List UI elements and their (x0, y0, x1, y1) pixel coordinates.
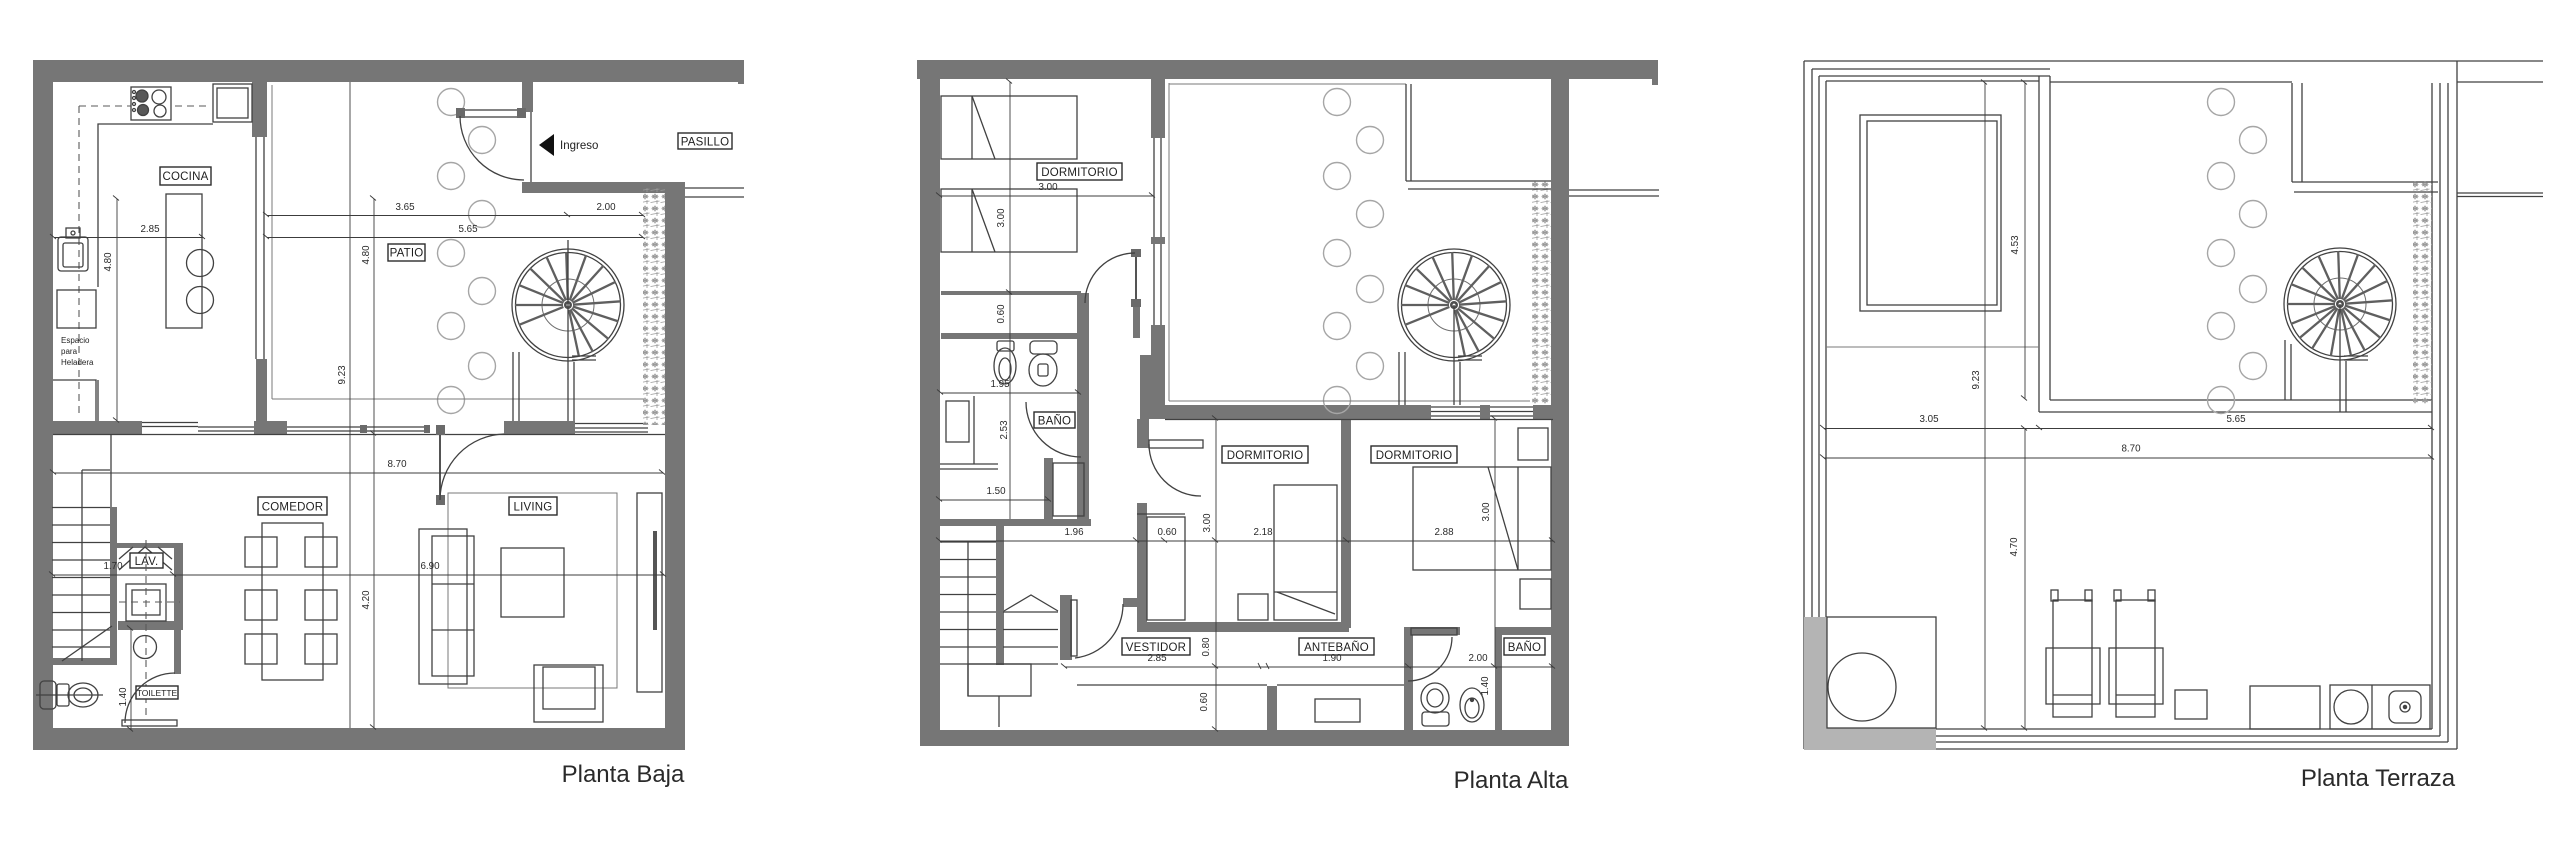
svg-text:2.88: 2.88 (1434, 527, 1454, 538)
svg-text:para: para (61, 347, 78, 356)
svg-text:4.53: 4.53 (2010, 235, 2021, 255)
svg-text:3.00: 3.00 (1038, 182, 1058, 193)
svg-text:0.60: 0.60 (1157, 527, 1177, 538)
svg-text:5.65: 5.65 (458, 224, 478, 235)
svg-text:BAÑO: BAÑO (1508, 641, 1541, 654)
svg-text:1.50: 1.50 (986, 486, 1006, 497)
svg-text:Planta Terraza: Planta Terraza (2301, 765, 2456, 792)
svg-text:1.40: 1.40 (1480, 676, 1491, 696)
svg-text:2.18: 2.18 (1253, 527, 1273, 538)
svg-text:0.80: 0.80 (1201, 637, 1212, 657)
svg-text:3.00: 3.00 (1481, 502, 1492, 522)
svg-text:Heladera: Heladera (61, 358, 94, 367)
svg-text:PATIO: PATIO (390, 248, 424, 260)
svg-text:3.65: 3.65 (395, 202, 415, 213)
svg-text:2.00: 2.00 (1468, 653, 1488, 664)
svg-text:Ingreso: Ingreso (560, 140, 598, 152)
svg-text:BAÑO: BAÑO (1038, 415, 1071, 428)
svg-text:8.70: 8.70 (387, 459, 407, 470)
svg-text:9.23: 9.23 (1971, 370, 1982, 390)
svg-text:4.80: 4.80 (103, 252, 114, 272)
svg-text:1.70: 1.70 (103, 561, 123, 572)
svg-text:2.85: 2.85 (140, 224, 160, 235)
svg-text:3.05: 3.05 (1919, 414, 1939, 425)
svg-text:3.00: 3.00 (996, 208, 1007, 228)
svg-text:3.00: 3.00 (1202, 513, 1213, 533)
svg-text:TOILETTE: TOILETTE (137, 688, 178, 698)
svg-text:2.85: 2.85 (1147, 653, 1167, 664)
svg-text:0.60: 0.60 (1199, 692, 1210, 712)
svg-text:COCINA: COCINA (163, 171, 209, 183)
svg-text:1.95: 1.95 (990, 379, 1010, 390)
svg-text:Planta Alta: Planta Alta (1454, 767, 1569, 794)
svg-text:Espacio: Espacio (61, 336, 90, 345)
svg-text:4.70: 4.70 (2009, 537, 2020, 557)
svg-text:2.00: 2.00 (596, 202, 616, 213)
svg-text:DORMITORIO: DORMITORIO (1227, 450, 1304, 462)
svg-text:COMEDOR: COMEDOR (262, 502, 323, 514)
svg-text:8.70: 8.70 (2121, 444, 2141, 455)
svg-text:PASILLO: PASILLO (681, 137, 730, 149)
svg-text:0.60: 0.60 (996, 304, 1007, 324)
svg-text:2.53: 2.53 (999, 420, 1010, 440)
svg-text:1.90: 1.90 (1322, 653, 1342, 664)
svg-text:5.65: 5.65 (2226, 414, 2246, 425)
svg-text:Planta Baja: Planta Baja (562, 761, 685, 788)
svg-text:LIVING: LIVING (514, 502, 553, 514)
svg-text:4.20: 4.20 (361, 590, 372, 610)
svg-text:DORMITORIO: DORMITORIO (1376, 450, 1453, 462)
svg-text:6.90: 6.90 (420, 561, 440, 572)
svg-text:4.80: 4.80 (361, 245, 372, 265)
svg-text:9.23: 9.23 (337, 365, 348, 385)
svg-text:1.40: 1.40 (118, 687, 129, 707)
svg-text:DORMITORIO: DORMITORIO (1041, 167, 1118, 179)
svg-text:1.96: 1.96 (1064, 527, 1084, 538)
